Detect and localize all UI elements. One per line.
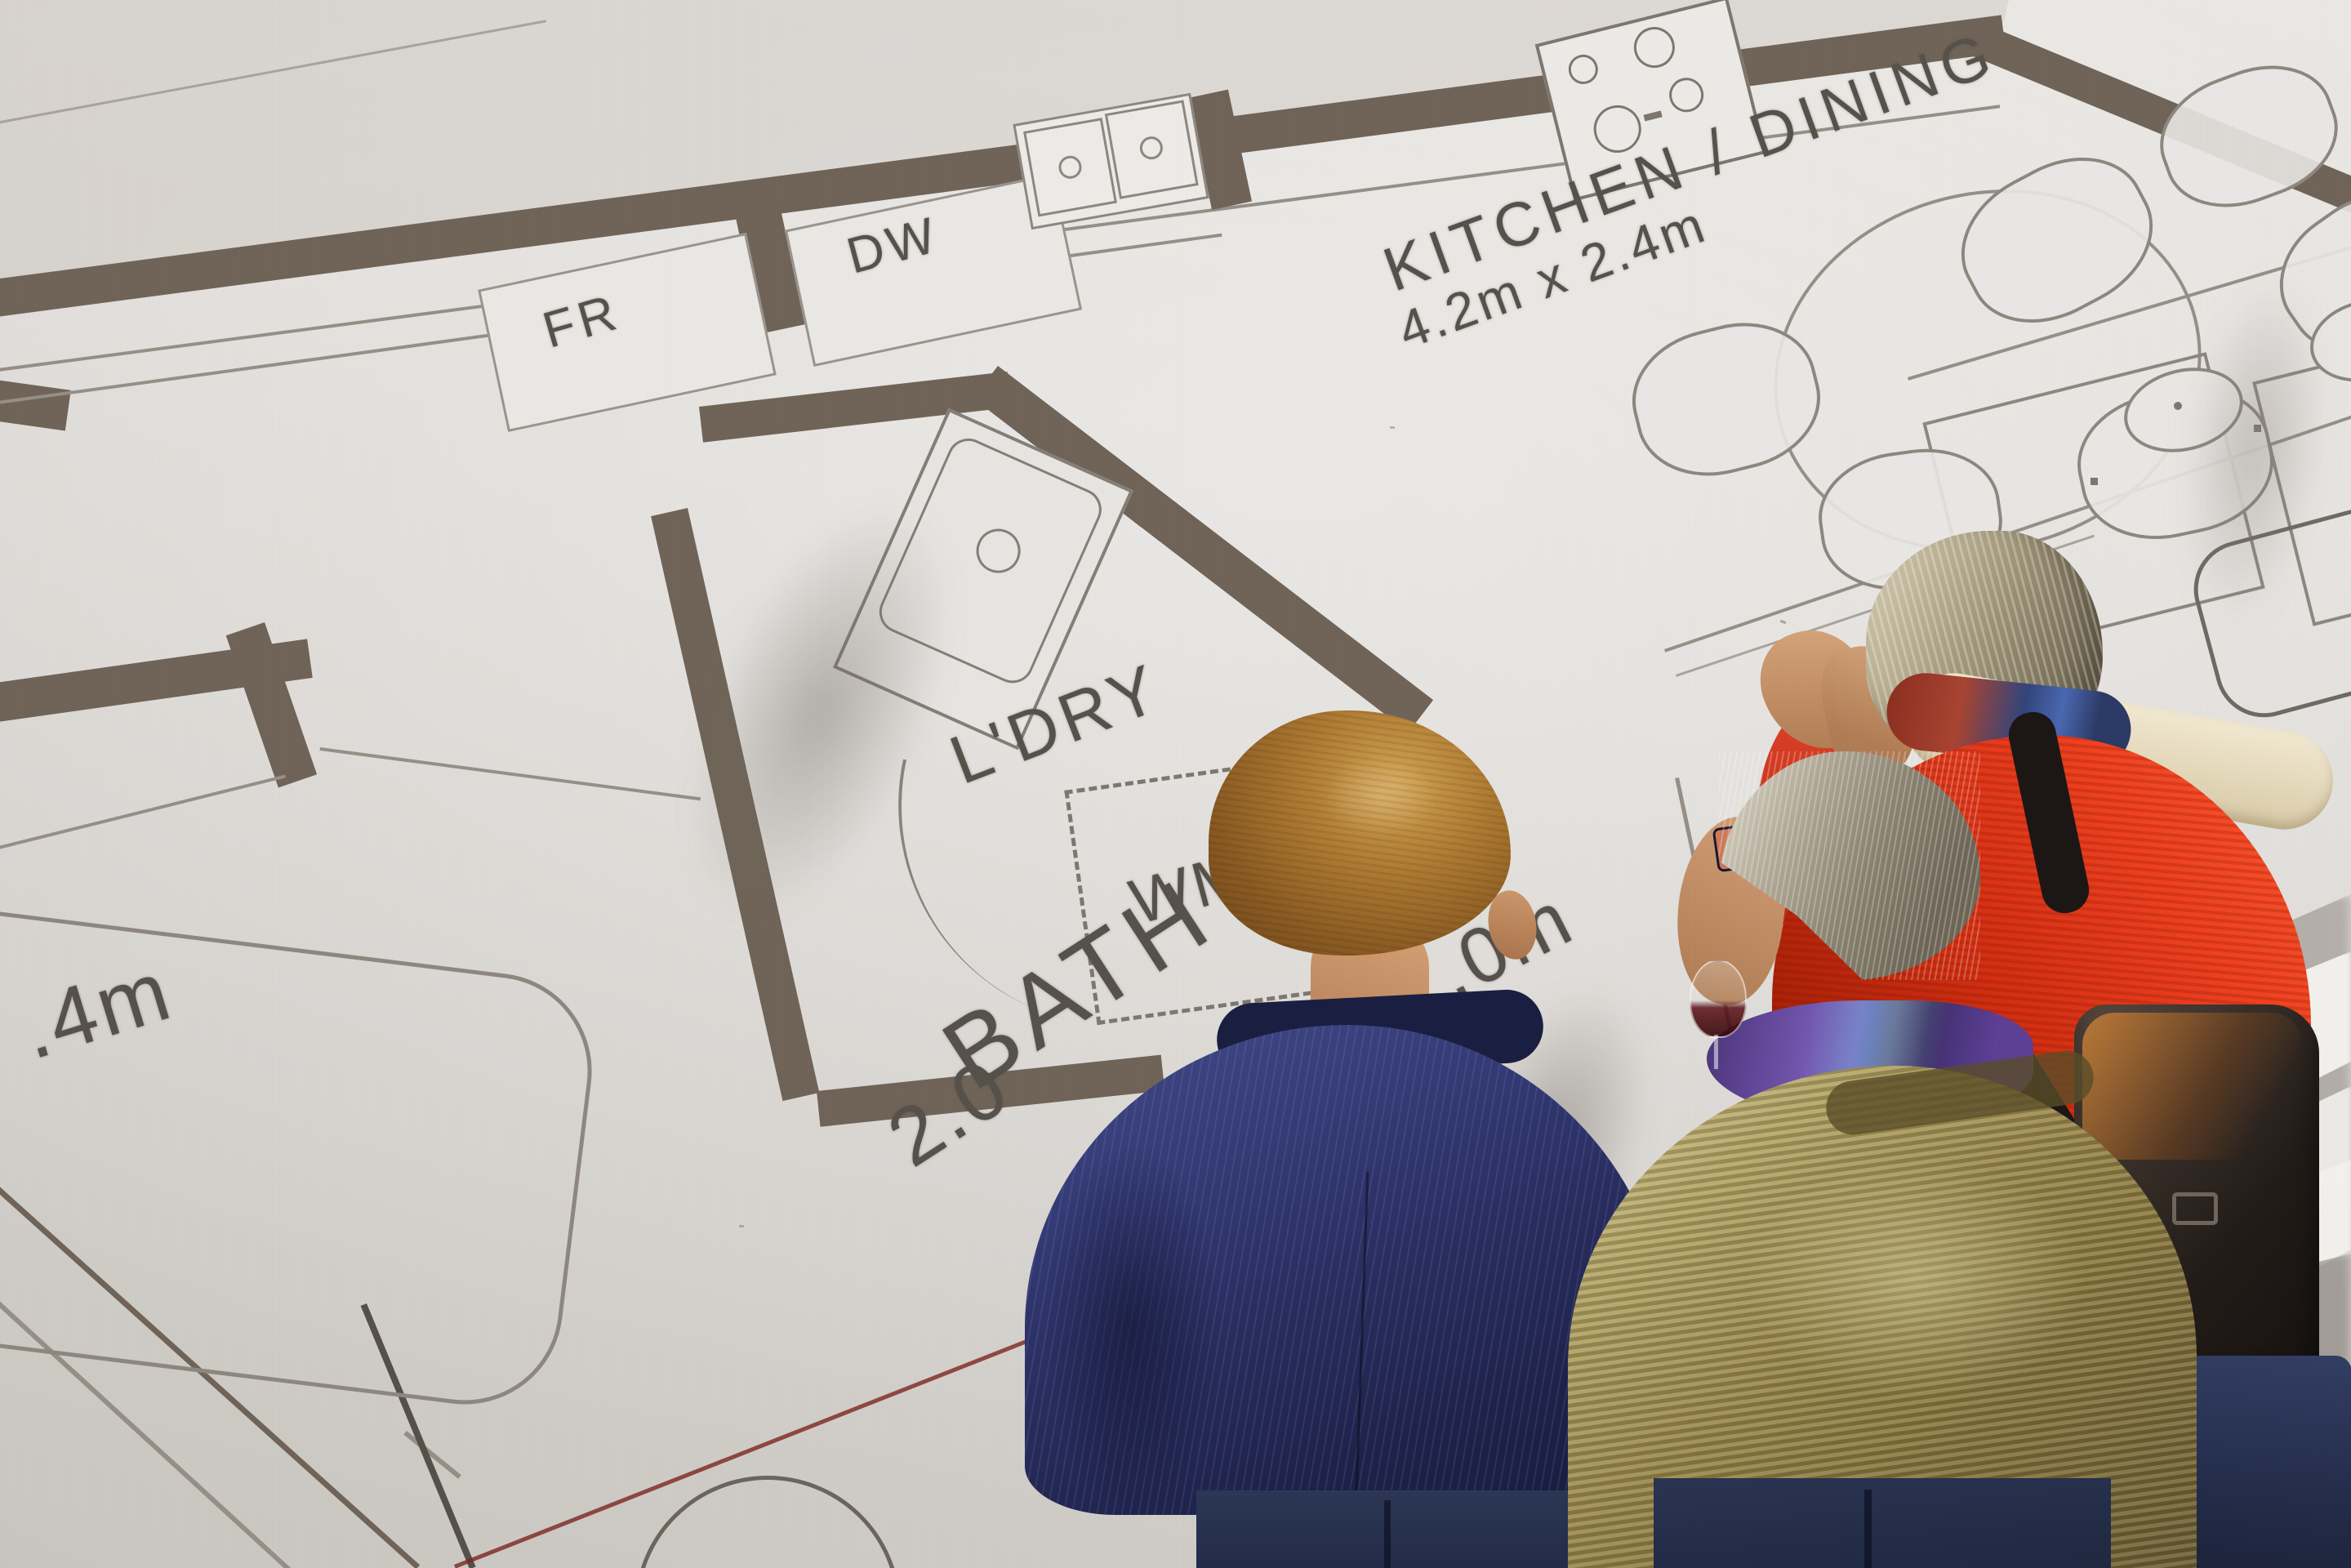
- sink-bowl: [1023, 118, 1117, 216]
- floor-circle: [635, 1476, 901, 1568]
- plan-line: [0, 774, 286, 850]
- cooktop-knob: [1644, 110, 1663, 121]
- sink-drain: [1138, 135, 1164, 161]
- dust-speck: [739, 1225, 744, 1227]
- navy-man-jeans: [1196, 1490, 1580, 1568]
- wine-glass: [1686, 960, 1752, 1074]
- fixture-dot: [2091, 478, 2098, 485]
- burner: [1666, 74, 1708, 116]
- suit-left-sleeve-shade: [1041, 1139, 1221, 1515]
- jeans-leg-seam: [1864, 1490, 1872, 1568]
- projected-light-band: [1744, 1156, 2087, 1401]
- tan-man-jeans: [1654, 1478, 2111, 1568]
- jeans-leg-seam: [1384, 1500, 1391, 1568]
- sink-drain: [1057, 154, 1083, 180]
- wine-glass-bowl: [1690, 960, 1747, 1038]
- furniture-rounded-rect: [0, 880, 603, 1415]
- dust-speck: [1390, 426, 1395, 429]
- hair-texture: [1209, 710, 1511, 955]
- wine-glass-stem: [1714, 1035, 1718, 1069]
- exhibition-floor-scene: FR DW KITCHEN / DINING 4.2m x 2.4m: [0, 0, 2351, 1568]
- sink-bowl: [1105, 100, 1199, 198]
- burner: [1565, 51, 1601, 87]
- burner: [1630, 23, 1680, 73]
- man-tan-jacket: [1556, 739, 2209, 1568]
- navy-man-hair: [1209, 710, 1511, 955]
